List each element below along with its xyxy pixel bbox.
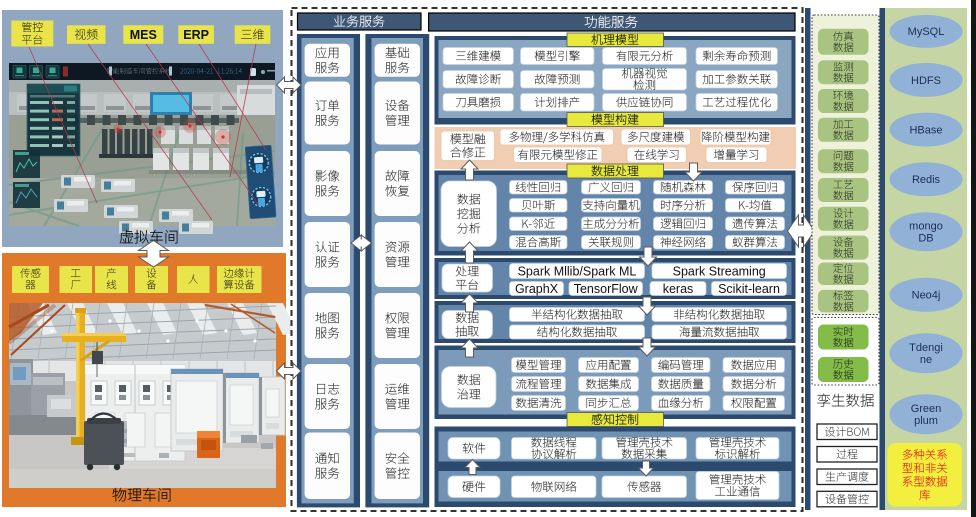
- svg-text:plum: plum: [914, 415, 938, 427]
- svg-text:Neo4j: Neo4j: [912, 290, 941, 302]
- svg-text:DB: DB: [918, 233, 933, 245]
- svg-text:Redis: Redis: [912, 174, 941, 186]
- svg-text:Spark Streaming: Spark Streaming: [673, 264, 766, 278]
- svg-text:MySQL: MySQL: [908, 26, 945, 38]
- svg-text:ne: ne: [920, 354, 932, 366]
- svg-text:Green: Green: [911, 403, 942, 415]
- svg-text:Scikit-learn: Scikit-learn: [718, 282, 780, 296]
- svg-text:Spark Mllib/Spark ML: Spark Mllib/Spark ML: [518, 264, 637, 278]
- svg-text:HBase: HBase: [909, 124, 942, 136]
- svg-text:TensorFlow: TensorFlow: [574, 282, 639, 296]
- svg-text:keras: keras: [663, 282, 694, 296]
- svg-text:ERP: ERP: [183, 28, 209, 42]
- svg-text:GraphX: GraphX: [515, 282, 559, 296]
- svg-text:MES: MES: [130, 28, 157, 42]
- svg-text:mongo: mongo: [909, 221, 943, 233]
- svg-text:HDFS: HDFS: [911, 75, 941, 87]
- svg-text:Tdengi: Tdengi: [909, 342, 943, 354]
